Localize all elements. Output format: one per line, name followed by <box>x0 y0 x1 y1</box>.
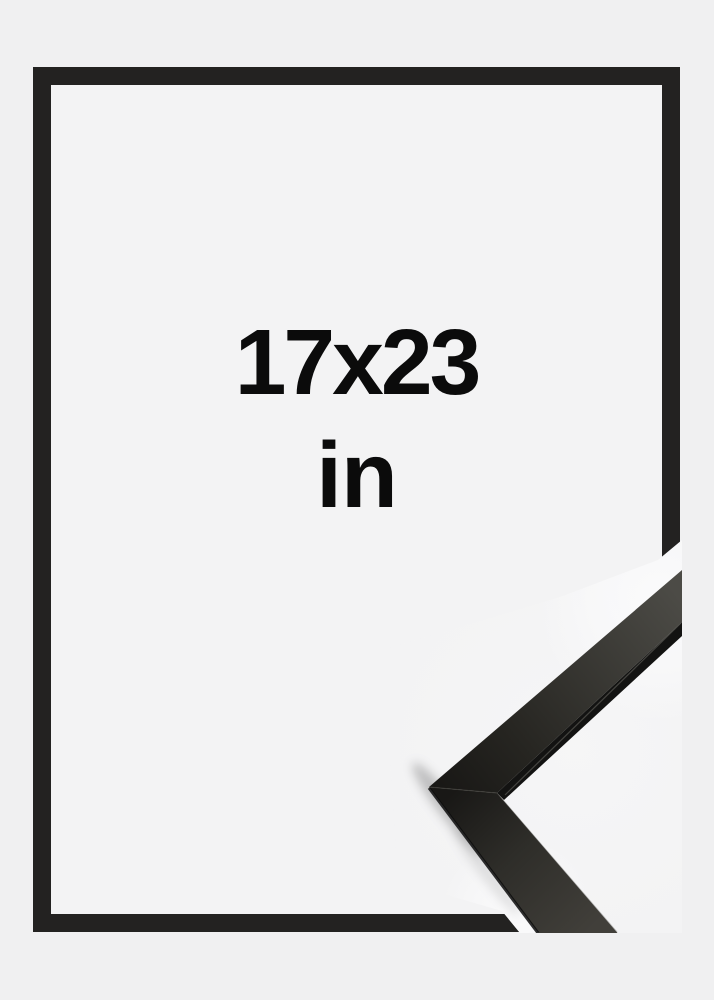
unit-label: in <box>33 429 680 522</box>
size-label: 17x23 <box>33 316 680 409</box>
product-image: 17x23 in <box>0 0 714 1000</box>
